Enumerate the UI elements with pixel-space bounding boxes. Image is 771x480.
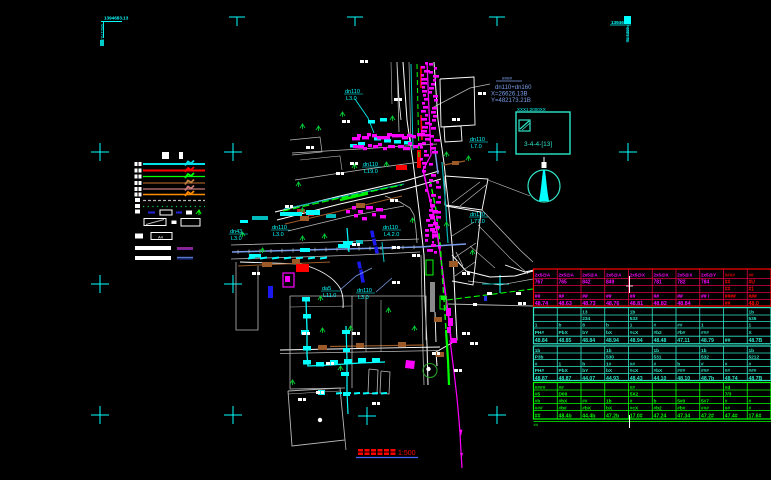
svg-text:#: # <box>748 362 751 368</box>
svg-text:1b: 1b <box>535 348 541 354</box>
svg-text:48.87: 48.87 <box>558 376 571 382</box>
svg-text:## /: ## / <box>701 294 710 300</box>
svg-text:1: 1 <box>558 362 561 368</box>
svg-text:842: 842 <box>582 280 591 286</box>
svg-text:#b#: #b# <box>558 406 567 412</box>
svg-text:532: 532 <box>701 355 709 361</box>
svg-text:PH#: PH# <box>535 330 545 336</box>
svg-text:7/3: 7/3 <box>725 392 732 398</box>
svg-text:2x5@A: 2x5@A <box>535 273 551 278</box>
svg-text:5#0: 5#0 <box>677 399 685 405</box>
svg-text:48.73: 48.73 <box>582 301 596 307</box>
svg-text:2x5@A: 2x5@A <box>606 273 622 278</box>
svg-text:###: ### <box>748 294 757 300</box>
svg-text:782: 782 <box>677 280 686 286</box>
svg-text:#bX: #bX <box>653 368 663 374</box>
svg-text:1b: 1b <box>748 348 754 354</box>
svg-text:48.4b: 48.4b <box>558 414 571 420</box>
svg-text:###: ### <box>701 330 709 336</box>
svg-text:bX: bX <box>606 368 613 374</box>
svg-text:PH#: PH# <box>535 368 545 374</box>
svg-text:L3.0: L3.0 <box>358 295 369 301</box>
svg-text:#b: #b <box>535 399 541 405</box>
svg-text:##: ## <box>725 280 731 286</box>
svg-text:#: # <box>535 362 538 368</box>
svg-text:##: ## <box>582 399 588 405</box>
svg-text:bX: bX <box>606 406 613 412</box>
svg-text:8: 8 <box>582 323 585 329</box>
svg-text:1#: 1# <box>606 362 612 368</box>
svg-text:4821.5B: 4821.5B <box>625 27 630 43</box>
svg-text:48.74: 48.74 <box>535 301 549 307</box>
svg-text:48.74: 48.74 <box>725 376 738 382</box>
svg-text:5X2: 5X2 <box>630 392 639 398</box>
svg-text:L11.0: L11.0 <box>323 293 336 299</box>
svg-text:##: ## <box>535 414 541 420</box>
svg-text:##: ## <box>582 294 588 300</box>
svg-text:#: # <box>748 399 751 405</box>
svg-text:#5: #5 <box>535 392 541 398</box>
svg-text:##: ## <box>677 294 683 300</box>
svg-text:###: ### <box>701 406 709 412</box>
svg-text:#: # <box>701 362 704 368</box>
svg-text:1: 1 <box>748 323 751 329</box>
svg-text:##: ## <box>725 368 731 374</box>
svg-text:2x5@Y: 2x5@Y <box>701 273 716 278</box>
svg-text:5#7: 5#7 <box>701 399 709 405</box>
svg-text:1:500: 1:500 <box>398 450 416 457</box>
svg-text:P3b: P3b <box>535 355 544 361</box>
svg-text:#cX: #cX <box>630 406 639 412</box>
svg-text:#: # <box>653 323 656 329</box>
svg-text:##: ## <box>630 385 636 391</box>
svg-text:PbX: PbX <box>558 368 568 374</box>
svg-text:##: ## <box>725 287 731 293</box>
svg-text:L3.0: L3.0 <box>346 96 357 102</box>
svg-text:b: b <box>653 399 656 405</box>
svg-text:D00: D00 <box>558 392 567 398</box>
svg-text:1: 1 <box>630 323 633 329</box>
svg-text:bY: bY <box>582 330 589 336</box>
svg-text:48.7B: 48.7B <box>748 376 762 382</box>
svg-text:##: ## <box>558 385 564 391</box>
svg-text:47.4#: 47.4# <box>725 414 738 420</box>
svg-text:L4.2.0: L4.2.0 <box>384 232 399 238</box>
svg-text:X=26626.13B: X=26626.13B <box>491 92 528 98</box>
svg-text:###: ### <box>748 368 756 374</box>
svg-text:44.93: 44.93 <box>606 376 619 382</box>
svg-text:48.0: 48.0 <box>748 301 759 307</box>
svg-text:1b: 1b <box>630 310 636 316</box>
svg-text:L7.0: L7.0 <box>471 144 482 150</box>
svg-text:##: ## <box>558 294 564 300</box>
svg-text:###: ### <box>535 406 543 412</box>
svg-text:b: b <box>582 362 585 368</box>
svg-text:#bX: #bX <box>558 399 568 405</box>
svg-text:48.7B: 48.7B <box>748 338 762 344</box>
svg-text:1b: 1b <box>606 348 612 354</box>
svg-text:48.48: 48.48 <box>653 338 666 344</box>
svg-text:#d: #d <box>725 385 731 391</box>
svg-text:48.84: 48.84 <box>582 338 595 344</box>
svg-text:44.4b: 44.4b <box>582 414 595 420</box>
svg-text:1: 1 <box>701 323 704 329</box>
svg-text:47.2#: 47.2# <box>701 414 714 420</box>
svg-text:781: 781 <box>653 280 662 286</box>
svg-text:L3.0: L3.0 <box>273 232 284 238</box>
svg-text:#: # <box>748 406 751 412</box>
svg-text:#: # <box>725 399 728 405</box>
svg-text:bY: bY <box>582 368 589 374</box>
svg-text:#b#: #b# <box>677 406 686 412</box>
svg-text:Y=482173.21B: Y=482173.21B <box>491 98 531 104</box>
svg-text:##: ## <box>535 294 541 300</box>
svg-text:17.6#: 17.6# <box>748 414 761 420</box>
svg-text:b: b <box>606 323 609 329</box>
svg-text:#: # <box>725 362 728 368</box>
svg-text:##: ## <box>534 422 539 427</box>
svg-text:44.10: 44.10 <box>653 376 666 382</box>
svg-text:##: ## <box>630 362 636 368</box>
svg-text:48.85: 48.85 <box>558 338 571 344</box>
svg-text:b: b <box>558 323 561 329</box>
svg-text:48.84: 48.84 <box>677 301 691 307</box>
svg-text:#: # <box>630 399 633 405</box>
svg-text:##: ## <box>725 406 731 412</box>
svg-text:####: #### <box>725 273 736 278</box>
svg-text:48.87: 48.87 <box>535 376 548 382</box>
svg-text:b: b <box>677 362 680 368</box>
svg-text:#cX: #cX <box>630 368 639 374</box>
svg-text:3-4-4-[13]: 3-4-4-[13] <box>524 141 552 148</box>
svg-text:###: ### <box>677 368 685 374</box>
svg-text:767: 767 <box>535 280 544 286</box>
svg-text:#b#: #b# <box>677 330 686 336</box>
svg-text:2x5@A: 2x5@A <box>558 273 574 278</box>
svg-text:48.79: 48.79 <box>701 338 714 344</box>
svg-text:#U: #U <box>748 280 755 286</box>
svg-text:47.11: 47.11 <box>677 338 690 344</box>
svg-text:L77.0: L77.0 <box>471 219 485 225</box>
svg-text:#1: #1 <box>748 287 754 293</box>
svg-text:234: 234 <box>582 316 590 322</box>
svg-text:13: 13 <box>582 310 588 316</box>
svg-text:1b: 1b <box>606 399 612 405</box>
svg-text:#: # <box>653 362 656 368</box>
svg-text:2x5@X: 2x5@X <box>630 273 646 278</box>
svg-text:##: ## <box>653 294 659 300</box>
svg-text:48.94: 48.94 <box>606 338 619 344</box>
svg-text:48.43: 48.43 <box>630 376 643 382</box>
svg-text:PbX: PbX <box>558 330 568 336</box>
svg-text:bX: bX <box>606 330 613 336</box>
svg-text:##: ## <box>748 273 754 278</box>
svg-text:L19.0: L19.0 <box>364 169 378 175</box>
svg-text:17.0#: 17.0# <box>630 414 643 420</box>
svg-text:####: #### <box>725 294 736 300</box>
svg-text:765: 765 <box>558 280 567 286</box>
svg-text:##: ## <box>725 338 731 344</box>
svg-text:XXX1:2000XX: XXX1:2000XX <box>517 107 546 112</box>
svg-text:48.10: 48.10 <box>677 376 690 382</box>
svg-text:47.24: 47.24 <box>653 414 666 420</box>
svg-text:5212: 5212 <box>748 355 759 361</box>
svg-text:#b2: #b2 <box>653 330 662 336</box>
svg-text:533: 533 <box>630 316 638 322</box>
svg-text:#b2: #b2 <box>653 406 662 412</box>
svg-text:47.2b: 47.2b <box>606 414 619 420</box>
svg-text:2x5@X: 2x5@X <box>677 273 693 278</box>
svg-text:A4: A4 <box>158 235 164 240</box>
svg-text:L3.0: L3.0 <box>231 236 242 242</box>
svg-text:1b: 1b <box>701 348 707 354</box>
svg-text:##: ## <box>630 294 636 300</box>
svg-text:2x5@X: 2x5@X <box>653 273 669 278</box>
svg-text:##: ## <box>606 294 612 300</box>
svg-text:###: ### <box>701 368 709 374</box>
svg-text:48.76: 48.76 <box>606 301 620 307</box>
svg-text:530: 530 <box>606 355 614 361</box>
svg-text:784: 784 <box>701 280 710 286</box>
svg-text:#bX: #bX <box>582 406 592 412</box>
svg-text:48.94: 48.94 <box>630 338 643 344</box>
svg-text:1394683.13: 1394683.13 <box>104 16 129 21</box>
svg-text:1: 1 <box>535 323 538 329</box>
svg-text:##: ## <box>725 301 731 307</box>
svg-text:48.7b: 48.7b <box>701 376 714 382</box>
svg-text:48.82: 48.82 <box>653 301 667 307</box>
svg-text:535: 535 <box>748 316 756 322</box>
svg-text:##: ## <box>677 323 683 329</box>
svg-text:44.07: 44.07 <box>582 376 595 382</box>
svg-text:####: #### <box>502 76 513 81</box>
svg-text:1b: 1b <box>748 310 754 316</box>
svg-text:48.84: 48.84 <box>535 338 548 344</box>
svg-text:####: #### <box>535 385 546 391</box>
svg-text:1b: 1b <box>653 348 659 354</box>
svg-text:2x5@A: 2x5@A <box>582 273 598 278</box>
svg-text:48.81: 48.81 <box>630 301 644 307</box>
svg-text:#cX: #cX <box>630 330 639 336</box>
svg-text:531: 531 <box>653 355 661 361</box>
svg-text:849: 849 <box>606 280 615 286</box>
svg-text:47.34: 47.34 <box>677 414 690 420</box>
svg-text:48.63: 48.63 <box>558 301 572 307</box>
svg-text:dn110+dn160: dn110+dn160 <box>495 85 532 91</box>
